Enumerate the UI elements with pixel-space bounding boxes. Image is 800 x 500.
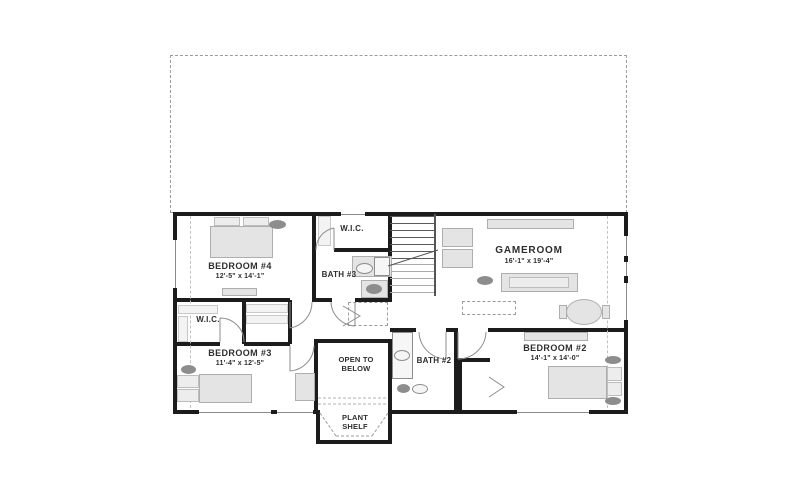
room-label-bath3: BATH #3 [320, 270, 358, 279]
room-name: BATH #3 [320, 270, 358, 279]
room-label-plant-shelf: PLANT SHELF [334, 414, 376, 432]
room-label-open-to-below: OPEN TO BELOW [331, 356, 381, 374]
open-to-below-edge-lines [318, 398, 388, 404]
staircase-break-line [388, 250, 438, 266]
room-label-bath2: BATH #2 [412, 356, 456, 365]
room-name: PLANT SHELF [334, 414, 376, 432]
room-name: BATH #2 [412, 356, 456, 365]
room-label-bedroom3: BEDROOM #3 11'-4" x 12'-5" [186, 348, 294, 368]
door-arc [331, 302, 355, 326]
room-name: W.I.C. [178, 315, 238, 324]
room-name: BEDROOM #4 [185, 261, 295, 272]
room-label-bedroom2: BEDROOM #2 14'-1" x 14'-0" [500, 343, 610, 363]
room-name: W.I.C. [316, 224, 388, 233]
room-name: BEDROOM #3 [186, 348, 294, 359]
floor-plan: BEDROOM #4 12'-5" x 14'-1" W.I.C. BATH #… [0, 0, 800, 500]
room-name: GAMEROOM [468, 245, 590, 257]
room-name: BEDROOM #2 [500, 343, 610, 354]
door-arc [419, 332, 446, 359]
room-name: OPEN TO BELOW [331, 356, 381, 374]
door-arc [458, 332, 486, 359]
room-dimensions: 11'-4" x 12'-5" [186, 360, 294, 368]
room-label-wic-top: W.I.C. [316, 224, 388, 233]
bifold-door-chevron [489, 377, 504, 397]
room-label-bedroom4: BEDROOM #4 12'-5" x 14'-1" [185, 261, 295, 281]
room-label-wic-left: W.I.C. [178, 315, 238, 324]
room-dimensions: 16'-1" x 19'-4" [468, 258, 590, 266]
room-dimensions: 12'-5" x 14'-1" [185, 273, 295, 281]
room-label-gameroom: GAMEROOM 16'-1" x 19'-4" [468, 245, 590, 266]
door-arc [290, 302, 312, 328]
bifold-door-chevron [343, 306, 360, 326]
annotation-overlay [0, 0, 800, 500]
room-dimensions: 14'-1" x 14'-0" [500, 355, 610, 363]
